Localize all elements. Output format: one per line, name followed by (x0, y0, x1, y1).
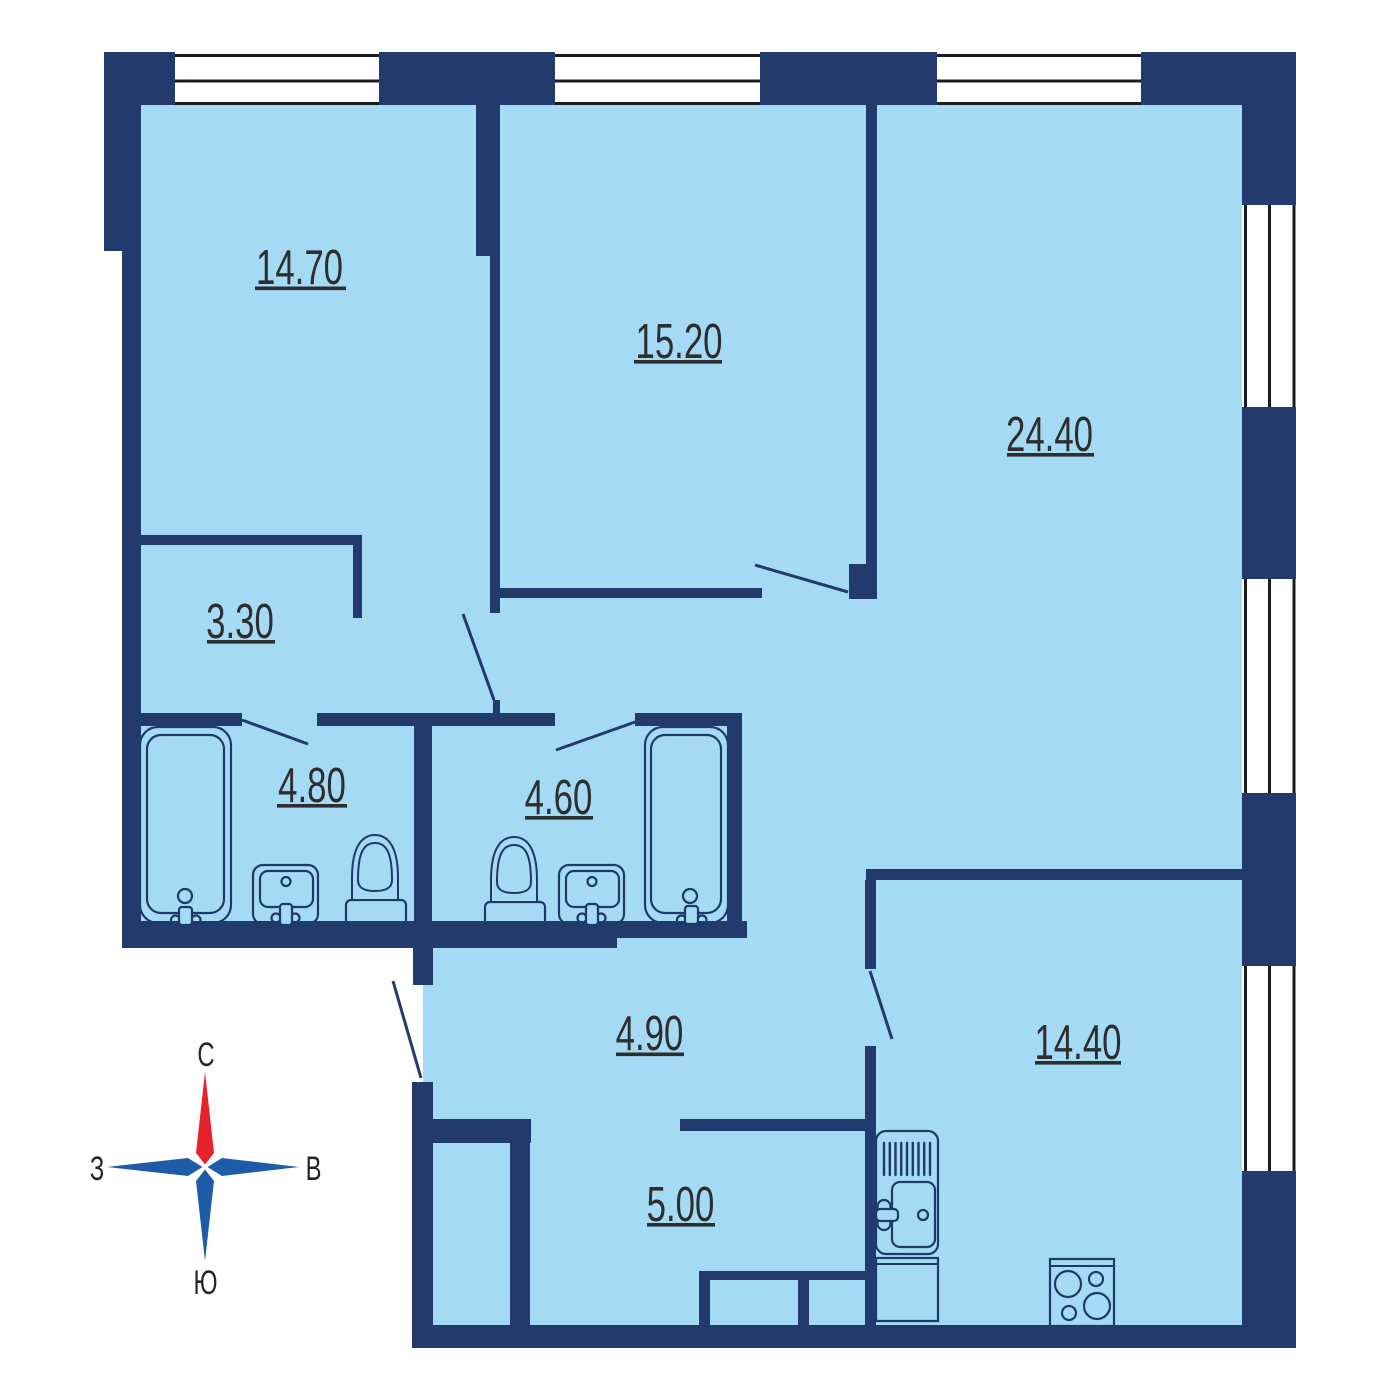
svg-text:С: С (197, 1036, 214, 1074)
svg-text:Ю: Ю (193, 1264, 217, 1302)
svg-text:З: З (90, 1150, 104, 1188)
svg-text:В: В (306, 1150, 322, 1188)
